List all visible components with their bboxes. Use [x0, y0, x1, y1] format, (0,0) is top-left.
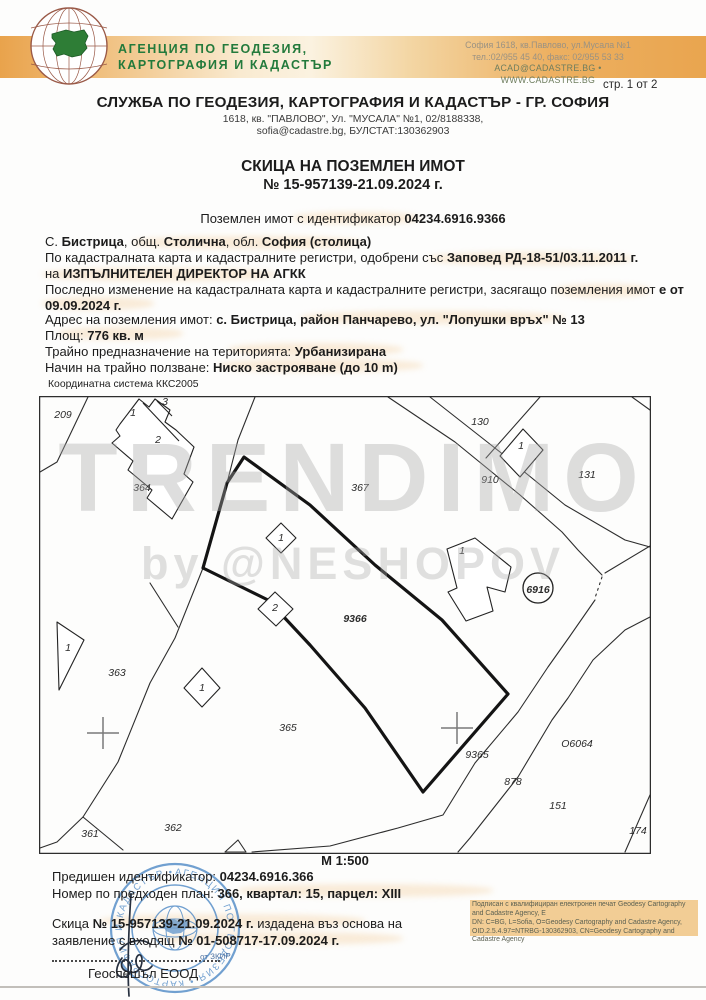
- office-title: СЛУЖБА ПО ГЕОДЕЗИЯ, КАРТОГРАФИЯ И КАДАСТ…: [0, 94, 706, 111]
- agency-logo: [28, 4, 110, 88]
- property-approval-order: По кадастралната карта и кадастралните р…: [45, 250, 670, 265]
- dotted-boundary: [595, 577, 602, 598]
- parcel-boundary: [150, 583, 178, 627]
- property-last-change: Последно изменение на кадастралната карт…: [45, 282, 670, 297]
- agency-name-line2: КАРТОГРАФИЯ И КАДАСТЪР: [118, 58, 333, 74]
- parcel-boundary: [458, 617, 650, 852]
- text-segment: Площ:: [45, 328, 87, 343]
- parcel-boundary: [40, 817, 83, 848]
- property-identifier: Поземлен имот с идентификатор 04234.6916…: [0, 211, 706, 226]
- text-segment: Поземлен имот с идентификатор: [200, 211, 404, 226]
- cadastral-map-drawing: 2091323643671301910131119366211363365936…: [39, 396, 651, 854]
- map-parcel-label: 363: [108, 667, 126, 679]
- text-segment: с. Бистрица, район Панчарево, ул. "Лопуш…: [216, 312, 585, 327]
- text-segment: 04234.6916.9366: [404, 211, 505, 226]
- text-segment: Предишен идентификатор:: [52, 869, 220, 884]
- agency-name-line1: АГЕНЦИЯ ПО ГЕОДЕЗИЯ,: [118, 42, 333, 58]
- text-segment: Урбанизирана: [295, 344, 386, 359]
- previous-plan-number: Номер по предходен план: 366, квартал: 1…: [52, 886, 401, 901]
- map-parcel-label: 910: [481, 474, 499, 486]
- map-parcel-label: 364: [133, 482, 151, 494]
- esig-line4: OID.2.5.4.97=NTRBG-130362903, CN=Geodesy…: [470, 927, 698, 936]
- text-segment: 04234.6916.366: [220, 869, 314, 884]
- footer-divider: [0, 986, 706, 988]
- map-parcel-label: 209: [53, 409, 72, 421]
- agency-name: АГЕНЦИЯ ПО ГЕОДЕЗИЯ, КАРТОГРАФИЯ И КАДАС…: [118, 42, 333, 73]
- issue-statement-line2: заявление с входящ № 01-508717-17.09.202…: [52, 933, 339, 948]
- map-parcel-label: 1: [130, 407, 136, 419]
- text-segment: С.: [45, 234, 62, 249]
- property-approval-authority: на ИЗПЪЛНИТЕЛЕН ДИРЕКТОР НА АГКК: [45, 266, 670, 281]
- text-segment: 776 кв. м: [87, 328, 144, 343]
- esig-line2: and Cadastre Agency, E: [470, 909, 698, 918]
- map-parcel-label: 362: [164, 822, 182, 834]
- map-parcel-label: 1: [518, 440, 524, 452]
- map-parcel-label: 131: [578, 469, 596, 481]
- building-1-parcel-9366: [447, 538, 511, 621]
- map-parcel-label: О6064: [561, 738, 593, 750]
- text-segment: , общ.: [124, 234, 164, 249]
- globe-logo-icon: [28, 4, 110, 88]
- map-parcel-label: 130: [471, 416, 489, 428]
- map-parcel-label: 2: [271, 602, 278, 614]
- map-parcel-label: 174: [629, 825, 647, 837]
- text-segment: 09.09.2024 г.: [45, 298, 121, 313]
- road-910-west: [388, 397, 602, 575]
- text-segment: заявление с входящ: [52, 933, 178, 948]
- text-segment: Последно изменение на кадастралната карт…: [45, 282, 659, 297]
- text-segment: Адрес на поземления имот:: [45, 312, 216, 327]
- building-1-parcel-131: [500, 429, 543, 477]
- text-segment: Номер по предходен план:: [52, 886, 217, 901]
- document-title: СКИЦА НА ПОЗЕМЛЕН ИМОТ: [0, 158, 706, 176]
- small-structure: [225, 840, 246, 852]
- building-cluster-364: [112, 399, 194, 519]
- header-contact-phone: тел.:02/955 45 40, факс: 02/955 53 33: [448, 52, 648, 64]
- text-segment: № 01-508717-17.09.2024 г.: [178, 933, 339, 948]
- map-parcel-label: 1: [65, 642, 71, 654]
- esig-line3: DN: C=BG, L=Sofia, O=Geodesy Cartography…: [470, 918, 698, 927]
- property-area: Площ: 776 кв. м: [45, 328, 670, 343]
- text-segment: Скица: [52, 916, 93, 931]
- stamp-text-fragment: от ЗКИР: [200, 951, 231, 961]
- document-number: № 15-957139-21.09.2024 г.: [0, 177, 706, 193]
- map-parcel-label: 367: [351, 482, 370, 494]
- map-parcel-label: 361: [81, 828, 99, 840]
- previous-identifier: Предишен идентификатор: 04234.6916.366: [52, 869, 314, 884]
- text-segment: Бистрица: [62, 234, 124, 249]
- map-parcel-label: 151: [549, 800, 567, 812]
- issuing-company: Геоспешъл ЕООД: [88, 966, 198, 981]
- text-segment: По кадастралната карта и кадастралните р…: [45, 250, 447, 265]
- text-segment: , обл.: [226, 234, 262, 249]
- property-address: Адрес на поземления имот: с. Бистрица, р…: [45, 312, 670, 327]
- text-segment: Трайно предназначение на територията:: [45, 344, 295, 359]
- text-segment: № 15-957139-21.09.2024 г.: [93, 916, 254, 931]
- esig-line5: Cadastre Agency: [470, 936, 698, 944]
- text-segment: Столична: [164, 234, 226, 249]
- parcel-boundary: [632, 397, 650, 410]
- map-parcel-label: 3: [162, 396, 168, 408]
- parcel-boundary: [605, 546, 650, 573]
- text-segment: ИЗПЪЛНИТЕЛЕН ДИРЕКТОР НА АГКК: [63, 266, 306, 281]
- text-segment: издадена въз основа на: [254, 916, 403, 931]
- cadastral-sketch-page: АГЕНЦИЯ ПО ГЕОДЕЗИЯ, КАРТОГРАФИЯ И КАДАС…: [0, 0, 706, 1000]
- page-indicator: стр. 1 от 2: [603, 79, 657, 91]
- map-parcel-label: 1: [278, 532, 284, 544]
- building-1-parcel-363: [57, 622, 84, 690]
- property-territory-purpose: Трайно предназначение на територията: Ур…: [45, 344, 670, 359]
- header-contact-address: София 1618, кв.Павлово, ул.Мусала №1: [448, 40, 648, 52]
- property-location: С. Бистрица, общ. Столична, обл. София (…: [45, 234, 670, 249]
- text-segment: е от: [659, 282, 684, 297]
- text-segment: на: [45, 266, 63, 281]
- text-segment: Ниско застрояване (до 10 m): [213, 360, 398, 375]
- map-parcel-label: 1: [459, 545, 465, 557]
- esig-line1: Подписан с квалифициран електронен печат…: [470, 900, 698, 909]
- map-parcel-label: 365: [279, 722, 297, 734]
- coordinate-system-label: Координатна система ККС2005: [48, 379, 199, 390]
- road-910-east: [430, 397, 650, 547]
- parcel-boundary-174: [625, 795, 650, 852]
- text-segment: Начин на трайно ползване:: [45, 360, 213, 375]
- property-last-change-date: 09.09.2024 г.: [45, 298, 670, 313]
- cadastral-map: 2091323643671301910131119366211363365936…: [39, 396, 651, 854]
- office-address: 1618, кв. "ПАВЛОВО", Ул. "МУСАЛА" №1, 02…: [0, 114, 706, 125]
- map-scale: М 1:500: [39, 853, 651, 868]
- issue-statement-line1: Скица № 15-957139-21.09.2024 г. издадена…: [52, 916, 402, 931]
- office-contact: sofia@cadastre.bg, БУЛСТАТ:130362903: [0, 126, 706, 137]
- text-segment: Заповед РД-18-51/03.11.2011 г.: [447, 250, 638, 265]
- map-parcel-label: 9365: [465, 749, 489, 761]
- map-parcel-label: 9366: [343, 613, 367, 625]
- map-parcel-label: 878: [504, 776, 522, 788]
- map-parcel-label: 6916: [526, 584, 550, 596]
- text-segment: 366, квартал: 15, парцел: XIII: [217, 886, 401, 901]
- text-segment: София (столица): [262, 234, 371, 249]
- property-land-use: Начин на трайно ползване: Ниско застрояв…: [45, 360, 670, 375]
- map-parcel-label: 2: [154, 434, 161, 446]
- electronic-signature-block: Подписан с квалифициран електронен печат…: [470, 900, 698, 944]
- map-parcel-label: 1: [199, 682, 205, 694]
